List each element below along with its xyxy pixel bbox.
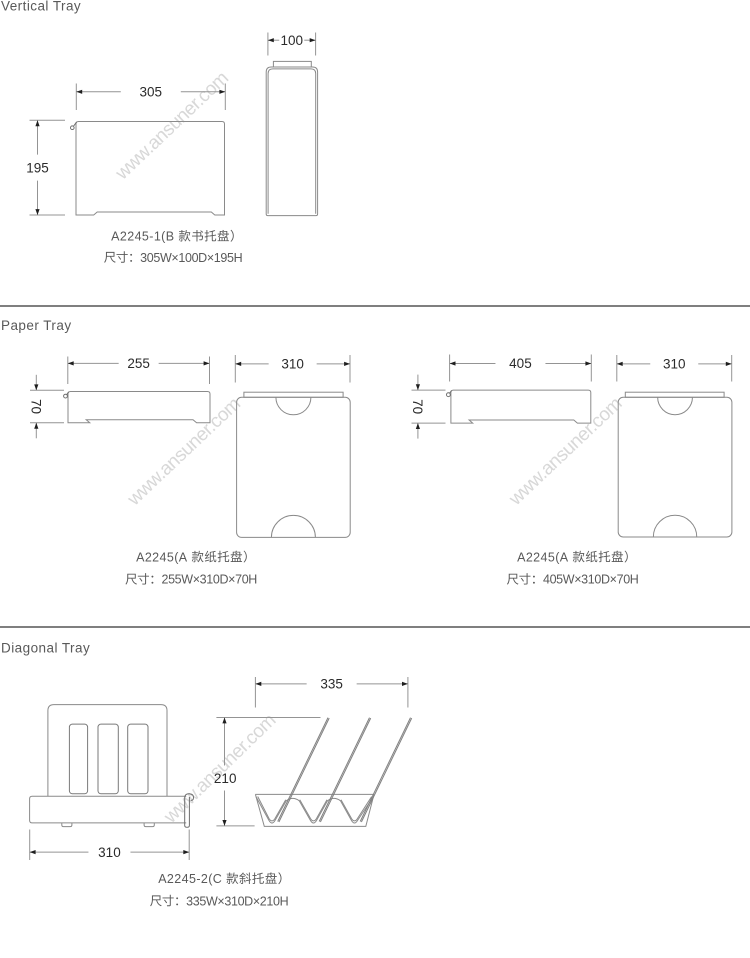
svg-text:Paper Tray: Paper Tray [1,318,72,333]
svg-text:A2245-2(C: A2245-2(C [158,872,222,886]
svg-text:A2245(A: A2245(A [136,550,188,564]
svg-text:255: 255 [127,356,150,371]
svg-text:Vertical Tray: Vertical Tray [1,0,81,14]
svg-text:305W×100D×195H: 305W×100D×195H [140,251,242,265]
svg-text:335: 335 [320,677,343,692]
svg-text:405: 405 [509,356,532,371]
svg-text:335W×310D×210H: 335W×310D×210H [186,894,288,908]
svg-text:A2245(A: A2245(A [517,550,569,564]
svg-text:Diagonal Tray: Diagonal Tray [1,640,90,655]
svg-text:www.ansuner.com: www.ansuner.com [123,394,245,511]
svg-text:195: 195 [26,160,49,175]
svg-text:210: 210 [214,771,237,786]
svg-text:100: 100 [280,33,303,48]
svg-text:405W×310D×70H: 405W×310D×70H [543,573,639,587]
svg-text:255W×310D×70H: 255W×310D×70H [161,573,257,587]
svg-text:305: 305 [140,85,163,100]
svg-text:70: 70 [29,399,44,414]
svg-text:310: 310 [98,845,121,860]
svg-text:www.ansuner.com: www.ansuner.com [111,68,233,185]
svg-text:70: 70 [410,399,425,414]
svg-text:www.ansuner.com: www.ansuner.com [504,394,626,511]
svg-text:310: 310 [663,357,686,372]
svg-text:310: 310 [281,357,304,372]
svg-text:A2245-1(B: A2245-1(B [111,230,174,244]
svg-text:www.ansuner.com: www.ansuner.com [160,710,281,828]
